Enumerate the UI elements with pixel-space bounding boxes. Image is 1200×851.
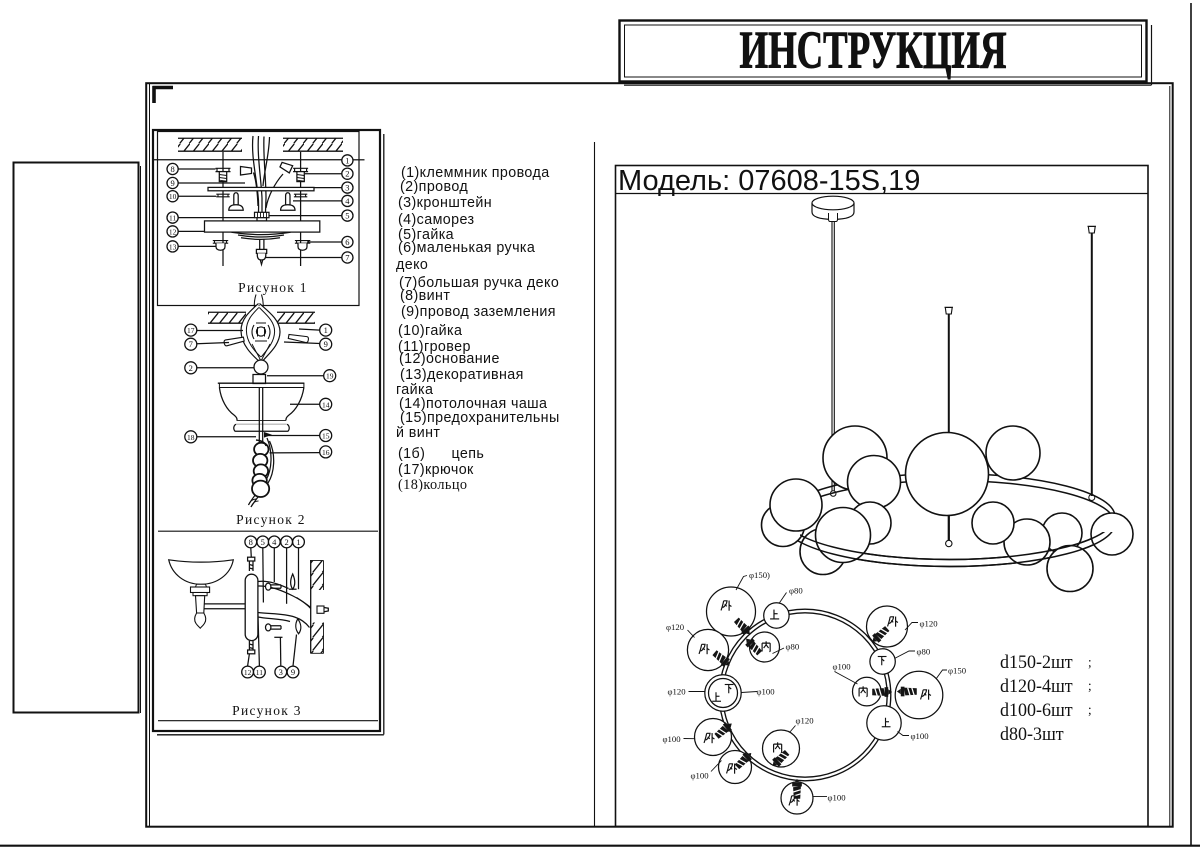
svg-text:19: 19 (326, 372, 334, 381)
svg-text:(15)предохранительны: (15)предохранительны (400, 410, 560, 426)
svg-text:7: 7 (189, 339, 193, 349)
svg-text:(18)кольцо: (18)кольцо (398, 477, 467, 493)
svg-text:17: 17 (187, 326, 195, 335)
svg-text:(8)винт: (8)винт (400, 288, 450, 304)
svg-text:2: 2 (345, 169, 349, 179)
svg-text:;: ; (1088, 654, 1092, 670)
svg-text:φ100: φ100 (833, 662, 852, 672)
svg-text:5: 5 (261, 537, 265, 547)
svg-text:φ100: φ100 (828, 793, 847, 803)
svg-text:9: 9 (324, 339, 328, 349)
svg-text:15: 15 (322, 432, 330, 441)
svg-text:(2)провод: (2)провод (400, 179, 468, 195)
svg-text:12: 12 (169, 227, 177, 236)
svg-text:φ80: φ80 (789, 586, 803, 596)
svg-text:φ80: φ80 (917, 647, 931, 657)
svg-text:φ100: φ100 (663, 734, 682, 744)
svg-text:Модель: 07608-15S,19: Модель: 07608-15S,19 (618, 165, 920, 197)
svg-text:4: 4 (272, 537, 277, 547)
svg-text:2: 2 (284, 537, 288, 547)
svg-text:d80-3шт: d80-3шт (1000, 723, 1064, 745)
svg-text:(12)основание: (12)основание (399, 351, 500, 367)
svg-text:φ120: φ120 (666, 622, 685, 632)
svg-text:;: ; (1088, 701, 1092, 717)
svg-text:3: 3 (345, 183, 349, 193)
svg-text:8: 8 (170, 164, 174, 174)
svg-text:d100-6шт: d100-6шт (1000, 699, 1073, 721)
svg-text:(4)саморез: (4)саморез (398, 212, 475, 228)
svg-text:(1б) цепь: (1б) цепь (398, 446, 484, 462)
svg-text:12: 12 (244, 668, 252, 677)
svg-text:деко: деко (396, 257, 428, 273)
svg-text:11: 11 (169, 214, 176, 223)
svg-text:9: 9 (291, 667, 295, 677)
svg-text:1: 1 (296, 537, 300, 547)
svg-text:8: 8 (249, 537, 253, 547)
svg-text:6: 6 (345, 237, 349, 247)
svg-text:13: 13 (169, 242, 177, 251)
svg-text:5: 5 (345, 211, 349, 221)
svg-text:11: 11 (256, 668, 263, 677)
svg-text:φ150): φ150) (749, 570, 770, 580)
svg-text:10: 10 (169, 192, 177, 201)
svg-text:;: ; (1088, 678, 1092, 694)
svg-text:ИНСТРУКЦИЯ: ИНСТРУКЦИЯ (739, 20, 1006, 79)
svg-text:1: 1 (345, 155, 349, 165)
svg-text:2: 2 (189, 363, 193, 373)
svg-text:Рисунок 2: Рисунок 2 (236, 512, 306, 527)
svg-text:(6)маленькая ручка: (6)маленькая ручка (398, 240, 535, 256)
svg-text:1: 1 (324, 325, 328, 335)
svg-text:φ120: φ120 (796, 716, 815, 726)
svg-text:14: 14 (322, 400, 330, 409)
svg-text:(17)крючок: (17)крючок (398, 462, 474, 478)
svg-text:й винт: й винт (396, 425, 440, 441)
svg-text:3: 3 (279, 667, 283, 677)
svg-text:18: 18 (187, 433, 195, 442)
svg-text:7: 7 (345, 253, 349, 263)
svg-text:φ120: φ120 (920, 619, 939, 629)
svg-text:(9)провод заземления: (9)провод заземления (401, 304, 556, 320)
svg-text:φ100: φ100 (757, 687, 776, 697)
svg-text:Рисунок 3: Рисунок 3 (232, 703, 302, 718)
svg-text:d120-4шт: d120-4шт (1000, 675, 1073, 697)
svg-text:d150-2шт: d150-2шт (1000, 651, 1073, 673)
svg-text:(3)кронштейн: (3)кронштейн (398, 195, 492, 211)
svg-text:9: 9 (170, 178, 174, 188)
svg-text:(10)гайка: (10)гайка (398, 323, 462, 339)
svg-text:Рисунок 1: Рисунок 1 (238, 280, 308, 295)
svg-text:φ100: φ100 (691, 771, 710, 781)
svg-text:16: 16 (322, 448, 330, 457)
svg-text:φ150: φ150 (948, 666, 967, 676)
svg-text:φ80: φ80 (786, 642, 800, 652)
svg-text:φ120: φ120 (668, 687, 687, 697)
svg-text:φ100: φ100 (911, 731, 930, 741)
svg-text:(13)декоративная: (13)декоративная (400, 367, 524, 383)
svg-text:4: 4 (345, 196, 350, 206)
